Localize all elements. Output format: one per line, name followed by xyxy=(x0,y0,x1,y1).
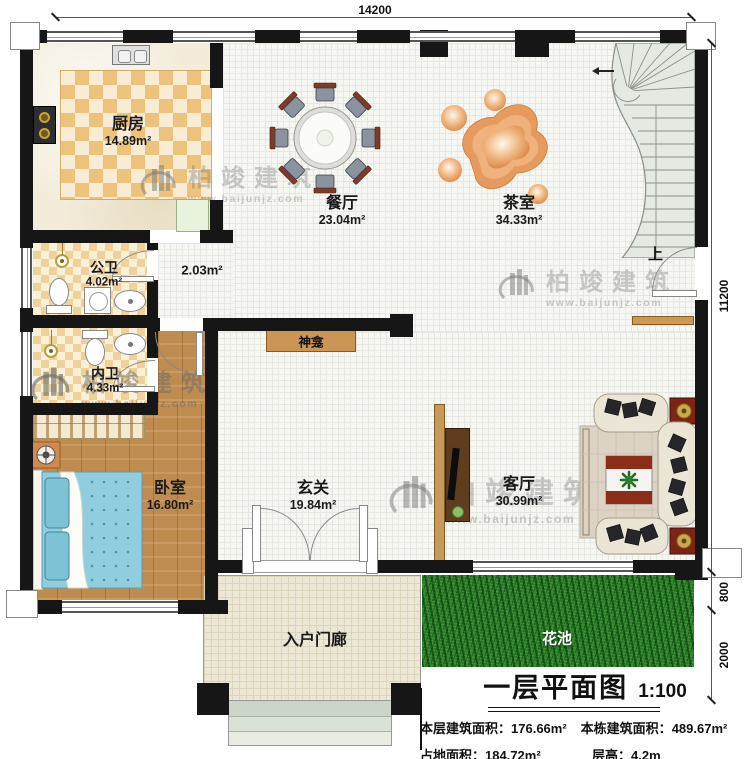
storey-height: 层高：4.2m xyxy=(592,745,661,759)
title-block-divider xyxy=(420,688,422,750)
wall-console xyxy=(632,316,694,325)
wall-segment xyxy=(147,318,160,331)
wall-segment xyxy=(20,403,158,415)
dimension-right-total: 11200 xyxy=(717,275,731,317)
corridor-floor xyxy=(158,243,233,318)
stove xyxy=(33,106,56,144)
door-leaf xyxy=(359,505,368,562)
title-block: 一层平面图 1:100 本层建筑面积：176.66m² 本栋建筑面积：489.6… xyxy=(420,666,750,759)
dimension-line-right xyxy=(711,43,712,700)
window xyxy=(21,248,32,308)
wall-segment xyxy=(255,30,300,43)
floor-plan: 柏竣建筑 www.baijunjz.com 柏竣建筑 www.baijunjz.… xyxy=(0,0,750,759)
wall-segment xyxy=(210,43,223,88)
door-leaf xyxy=(252,505,261,562)
ceiling-lamp xyxy=(55,254,69,268)
plan-scale: 1:100 xyxy=(638,681,687,703)
porch-pillar xyxy=(391,683,421,715)
window xyxy=(21,332,32,396)
tv-partition xyxy=(434,404,445,564)
wall-pillar xyxy=(390,314,413,337)
building-area: 本栋建筑面积：489.67m² xyxy=(581,718,728,737)
window xyxy=(47,31,123,42)
wall-segment xyxy=(123,30,173,43)
wall-segment xyxy=(205,331,218,613)
wall-segment xyxy=(20,315,158,328)
room-label-inner-bath: 内卫 4.33m² xyxy=(87,367,123,396)
fridge xyxy=(176,199,209,232)
wall-segment xyxy=(420,560,473,573)
lamp-cord xyxy=(51,330,52,345)
wall-segment xyxy=(373,560,420,573)
wall-segment xyxy=(695,30,708,247)
room-label-living: 客厅 30.99m² xyxy=(496,476,543,508)
dimension-top-width: 14200 xyxy=(340,3,410,17)
wall-segment xyxy=(20,396,33,614)
ceiling-lamp xyxy=(44,344,58,358)
toilet-bowl xyxy=(85,338,105,366)
dining-table xyxy=(267,80,383,196)
wall-segment xyxy=(357,30,410,43)
room-label-kitchen: 厨房 14.89m² xyxy=(105,116,152,148)
wall-segment xyxy=(20,30,33,248)
stairs-up-label: 上 xyxy=(648,243,663,264)
door-leaf xyxy=(196,332,203,376)
room-label-porch: 入户门廊 xyxy=(283,632,347,650)
dimension-line-top xyxy=(55,17,692,18)
wall-segment xyxy=(200,230,233,243)
toilet-bowl xyxy=(49,278,69,306)
bed-group xyxy=(30,440,145,590)
room-label-tea: 茶室 34.33m² xyxy=(496,195,543,227)
shrine-label: 神龛 xyxy=(298,331,323,350)
kitchen-sink xyxy=(112,45,150,65)
basin xyxy=(114,333,146,355)
toilet-tank xyxy=(46,305,72,314)
sofa-group xyxy=(578,392,700,560)
window xyxy=(410,31,515,42)
wall-segment xyxy=(203,318,413,331)
wall-pillar xyxy=(515,30,549,57)
room-label-corridor: 2.03m² xyxy=(181,264,222,279)
window xyxy=(173,31,255,42)
wall-segment xyxy=(178,600,228,614)
room-label-dining: 餐厅 23.04m² xyxy=(319,195,366,227)
corner-box xyxy=(6,590,38,618)
corner-box xyxy=(702,548,742,578)
wall-segment xyxy=(147,392,158,403)
shower-unit xyxy=(84,287,111,314)
wall-segment xyxy=(147,280,158,315)
room-label-foyer: 玄关 19.84m² xyxy=(290,480,337,512)
wall-segment xyxy=(147,243,158,250)
window xyxy=(473,561,633,572)
room-label-flower-bed: 花池 xyxy=(542,632,572,649)
dimension-flower-top: 800 xyxy=(717,578,731,606)
porch-steps xyxy=(228,700,392,746)
flower-bed-grass xyxy=(422,575,694,667)
shrine-shelf: 神龛 xyxy=(266,329,356,352)
window xyxy=(62,601,178,613)
room-label-public-bath: 公卫 4.02m² xyxy=(86,261,122,290)
footprint-area: 占地面积：184.72m² xyxy=(420,745,578,759)
stairs-arrowhead xyxy=(592,67,599,75)
window xyxy=(575,31,660,42)
room-label-bedroom: 卧室 16.80m² xyxy=(147,480,194,512)
title-underline xyxy=(488,707,660,712)
porch-pillar xyxy=(197,683,229,715)
corner-box xyxy=(10,22,40,50)
plan-title: 一层平面图 xyxy=(483,666,628,705)
wall-segment xyxy=(20,230,150,243)
cabinet-plant xyxy=(452,506,464,518)
wall-segment xyxy=(695,300,708,572)
window xyxy=(300,31,357,42)
basin xyxy=(114,290,146,312)
stairs-direction-arrow xyxy=(598,70,614,72)
floor-area: 本层建筑面积：176.66m² xyxy=(420,718,567,737)
staircase xyxy=(594,43,695,258)
entrance-opening xyxy=(247,560,373,573)
